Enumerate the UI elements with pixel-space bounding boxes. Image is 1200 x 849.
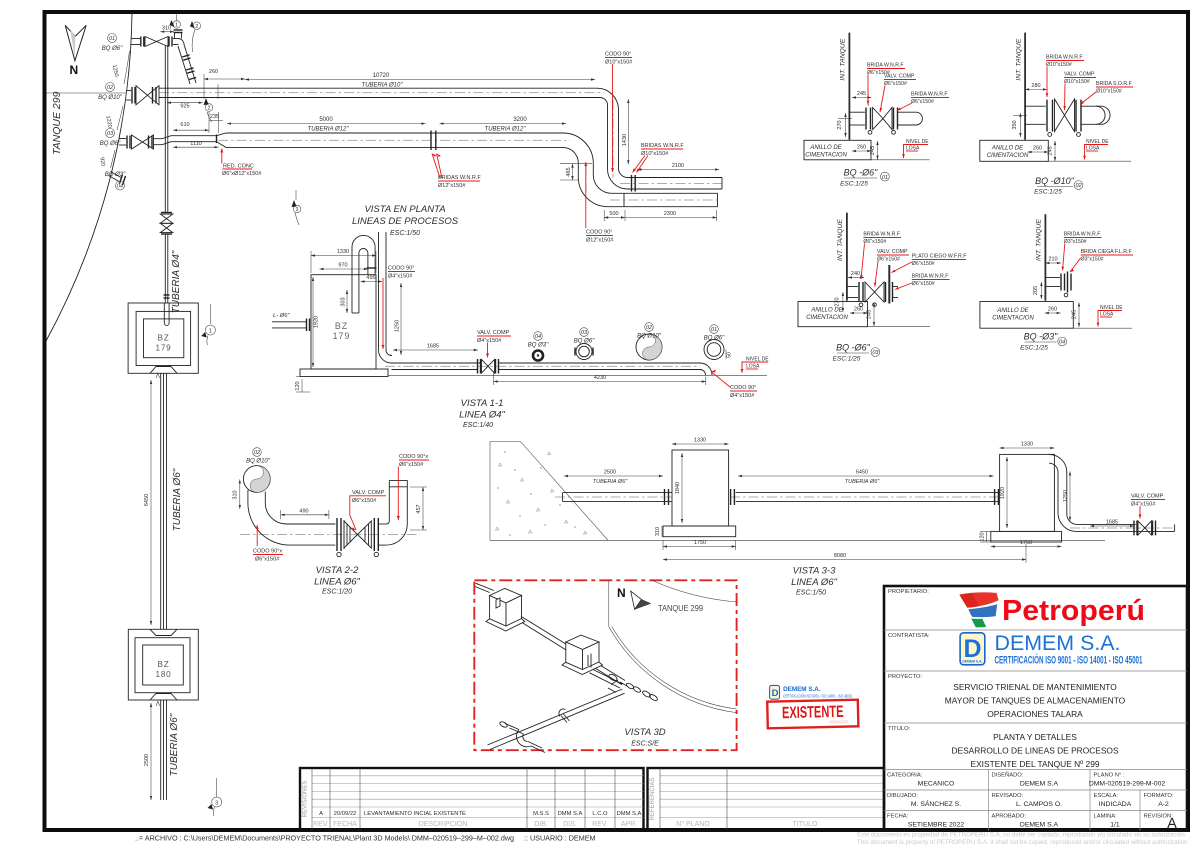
svg-text:920: 920 <box>98 157 105 167</box>
svg-text:5000: 5000 <box>319 117 333 123</box>
svg-text:6450: 6450 <box>856 470 868 476</box>
svg-text:BQ -Ø6": BQ -Ø6" <box>844 168 879 178</box>
svg-text:FORMATO:: FORMATO: <box>1144 793 1174 799</box>
svg-text:1840: 1840 <box>675 482 681 494</box>
svg-text:260: 260 <box>1033 146 1042 152</box>
svg-text:BQ Ø6": BQ Ø6" <box>100 141 121 147</box>
svg-text:BZ: BZ <box>335 321 348 331</box>
svg-text:BZ: BZ <box>157 334 169 343</box>
svg-text:LEVANTAMIENTO INCIAL EXISTEN: LEVANTAMIENTO INCIAL EXISTENTE <box>364 811 466 817</box>
svg-text:BQ Ø10": BQ Ø10" <box>98 95 123 101</box>
svg-text:CERTIFICACIÓN ISO 9001 - ISO: CERTIFICACIÓN ISO 9001 - ISO 14001 - ISO… <box>995 654 1143 667</box>
svg-text:465: 465 <box>566 167 572 176</box>
svg-text:DESARROLLO DE LINEAS DE PR: DESARROLLO DE LINEAS DE PROCESOS <box>951 746 1118 756</box>
svg-text:Ø12"x150#: Ø12"x150# <box>586 238 614 244</box>
svg-text:1: 1 <box>175 23 178 29</box>
svg-text:REVISADO:: REVISADO: <box>992 793 1024 799</box>
svg-text:BQ -Ø3": BQ -Ø3" <box>1024 332 1059 342</box>
svg-text:VISTA EN PLANTA: VISTA EN PLANTA <box>364 204 445 215</box>
svg-text:BQ -Ø6": BQ -Ø6" <box>836 343 871 353</box>
svg-text:3: 3 <box>215 801 218 807</box>
svg-text:03: 03 <box>581 330 588 336</box>
svg-text:VISTA 2-2: VISTA 2-2 <box>316 565 359 576</box>
svg-text:N° PLANO: N° PLANO <box>676 820 710 828</box>
svg-text:270: 270 <box>834 297 840 306</box>
svg-text:350: 350 <box>1012 120 1018 129</box>
svg-text:245: 245 <box>867 310 873 319</box>
svg-text:EXISTENTE DEL TANQUE Nº 29: EXISTENTE DEL TANQUE Nº 299 <box>970 759 1099 769</box>
svg-text:ESC:1/50: ESC:1/50 <box>796 590 826 597</box>
svg-text:ESC:1/50: ESC:1/50 <box>390 230 420 237</box>
svg-text:Ø10"x150#: Ø10"x150# <box>1096 89 1122 95</box>
svg-text:3: 3 <box>296 207 299 213</box>
svg-text:PROYECTO:: PROYECTO: <box>888 674 922 680</box>
svg-text:VALV. COMP: VALV. COMP <box>477 330 510 336</box>
svg-text:SETIEMBRE 2022: SETIEMBRE 2022 <box>908 822 965 829</box>
svg-text:LINEA Ø6": LINEA Ø6" <box>314 577 360 588</box>
svg-text:120: 120 <box>295 381 301 390</box>
svg-text:SERVICIO TRIENAL DE MANTENI: SERVICIO TRIENAL DE MANTENIMIENTO <box>953 682 1117 692</box>
svg-text:DIB.: DIB. <box>534 821 548 828</box>
svg-text:DIBUJADO:: DIBUJADO: <box>887 793 918 799</box>
svg-text:04: 04 <box>1059 340 1065 346</box>
svg-text:Ø10"x150#: Ø10"x150# <box>641 151 669 157</box>
svg-text:1110: 1110 <box>190 141 201 147</box>
svg-text:CIMENTACION: CIMENTACION <box>987 153 1029 159</box>
svg-text:BRIDAS W.N.R.F: BRIDAS W.N.R.F <box>438 175 481 181</box>
svg-text:PLANO N° :: PLANO N° : <box>1094 773 1125 779</box>
svg-text:TANQUE 299: TANQUE 299 <box>51 91 63 155</box>
svg-text:MECANICO: MECANICO <box>918 781 955 788</box>
svg-text:CIMENTACION: CIMENTACION <box>992 316 1034 322</box>
svg-text:BQ Ø6": BQ Ø6" <box>574 339 595 345</box>
svg-text:ANILLO DE: ANILLO DE <box>996 308 1029 314</box>
svg-text:02: 02 <box>1075 183 1081 189</box>
svg-text:610: 610 <box>180 122 189 128</box>
svg-text:ESC:1/25: ESC:1/25 <box>1034 189 1062 196</box>
svg-text:260: 260 <box>857 145 866 151</box>
svg-text:MAYOR DE TANQUES DE ALMACE: MAYOR DE TANQUES DE ALMACENAMIENTO <box>945 696 1126 706</box>
svg-text:FECHA: FECHA <box>333 821 357 828</box>
svg-text:179: 179 <box>155 344 171 353</box>
svg-text:310: 310 <box>655 527 661 536</box>
svg-text:03: 03 <box>107 131 114 137</box>
svg-text:VISTA 3D: VISTA 3D <box>624 727 665 738</box>
svg-text:Petroperú: Petroperú <box>1002 595 1145 627</box>
svg-text:INT. TANQUE: INT. TANQUE <box>840 38 847 80</box>
svg-text:20/09/22: 20/09/22 <box>334 811 357 817</box>
svg-text:L.C.O: L.C.O <box>592 811 608 817</box>
svg-text:Ø10"x150#: Ø10"x150# <box>1046 62 1072 68</box>
svg-text:APR.: APR. <box>621 821 637 828</box>
svg-text:DEMEM S.A.: DEMEM S.A. <box>783 686 821 693</box>
svg-text:260: 260 <box>854 307 863 313</box>
svg-text:245: 245 <box>1048 146 1054 155</box>
svg-text:260: 260 <box>209 69 218 75</box>
svg-text:1750: 1750 <box>694 540 706 546</box>
svg-text:CODO 90°: CODO 90° <box>586 230 612 236</box>
svg-text:DMM S.A: DMM S.A <box>617 811 642 817</box>
svg-text:Ø3"x150#: Ø3"x150# <box>1064 239 1087 245</box>
svg-text:10720: 10720 <box>373 73 390 79</box>
svg-text:2500: 2500 <box>144 754 150 766</box>
svg-text:179: 179 <box>333 331 351 341</box>
svg-text:180: 180 <box>155 670 171 679</box>
svg-text:TUBERIA Ø12": TUBERIA Ø12" <box>485 127 527 133</box>
svg-text:TUBERIA Ø6": TUBERIA Ø6" <box>172 468 183 531</box>
svg-text:2500: 2500 <box>604 470 616 476</box>
svg-text:VISTA 3-3: VISTA 3-3 <box>793 566 836 577</box>
svg-text:Ø6"x150#: Ø6"x150# <box>912 281 935 287</box>
svg-text:ESC:S/E: ESC:S/E <box>631 741 659 748</box>
svg-text:Ø4"x150#: Ø4"x150# <box>1131 502 1156 508</box>
svg-text:DIS.: DIS. <box>563 821 577 828</box>
svg-text:245: 245 <box>857 91 866 97</box>
svg-text:245: 245 <box>870 146 876 155</box>
svg-text:This document is property: This document is property of PETROPERU S… <box>857 839 1188 846</box>
svg-text:1330: 1330 <box>337 249 349 255</box>
svg-text:01: 01 <box>109 36 115 42</box>
svg-text:Ø4"x150#: Ø4"x150# <box>388 274 413 280</box>
svg-text:VALV. COMP: VALV. COMP <box>1131 494 1164 500</box>
svg-text:280: 280 <box>1031 83 1040 89</box>
svg-text:CODO 90°: CODO 90° <box>730 385 756 391</box>
svg-text:M.S.S: M.S.S <box>533 811 549 817</box>
svg-text:Ø6"x150#: Ø6"x150# <box>399 462 424 468</box>
svg-text:LINEA Ø6": LINEA Ø6" <box>791 577 837 588</box>
svg-text:REV.: REV. <box>313 821 329 828</box>
svg-text:240: 240 <box>851 271 860 277</box>
svg-text:CATEGORIA:: CATEGORIA: <box>887 773 923 779</box>
svg-text:INT. TANQUE: INT. TANQUE <box>1015 38 1022 80</box>
svg-text:03: 03 <box>872 350 879 356</box>
svg-text:M. SÁNCHEZ S.: M. SÁNCHEZ S. <box>911 799 961 808</box>
svg-text:PLANTA Y DETALLES: PLANTA Y DETALLES <box>993 732 1077 742</box>
svg-text:DMM-020519-299-M-002: DMM-020519-299-M-002 <box>1089 781 1166 788</box>
svg-text:210: 210 <box>1048 257 1057 263</box>
svg-text:DESCRIPCIÓN: DESCRIPCIÓN <box>419 819 468 828</box>
svg-text:490: 490 <box>299 508 308 514</box>
svg-text:BRIDA CIEGA F.L.R.F: BRIDA CIEGA F.L.R.F <box>1081 249 1132 255</box>
svg-text:310: 310 <box>162 26 171 32</box>
svg-text:BRIDA W.N.R.F: BRIDA W.N.R.F <box>912 274 949 280</box>
svg-text:BQ Ø3": BQ Ø3" <box>528 343 549 349</box>
svg-text:1250: 1250 <box>1063 490 1069 502</box>
svg-text:Ø6"xØ12"x150#: Ø6"xØ12"x150# <box>222 171 262 177</box>
svg-text:ESC:1/25: ESC:1/25 <box>833 356 861 363</box>
svg-text:ESC:1/40: ESC:1/40 <box>463 422 493 429</box>
svg-text:495: 495 <box>366 275 375 281</box>
svg-text:BRIDA W.N.R.F: BRIDA W.N.R.F <box>867 63 904 69</box>
svg-text:1: 1 <box>209 329 212 335</box>
svg-text:FECHA:: FECHA: <box>887 814 909 820</box>
svg-text:4230: 4230 <box>594 375 606 381</box>
svg-text:BRIDA S.O.R.F: BRIDA S.O.R.F <box>1096 81 1132 87</box>
svg-text:1920: 1920 <box>314 316 320 328</box>
svg-text:Ø6"x150#: Ø6"x150# <box>912 261 935 267</box>
svg-text:TUBERIA Ø6": TUBERIA Ø6" <box>845 479 880 485</box>
svg-text:N: N <box>70 63 79 77</box>
svg-text:Ø3"x150#: Ø3"x150# <box>1081 257 1104 263</box>
svg-text:1330: 1330 <box>1021 442 1033 448</box>
svg-text:REVISIONES: REVISIONES <box>303 781 309 818</box>
svg-text:303: 303 <box>341 297 347 306</box>
svg-text:VISTA 1-1: VISTA 1-1 <box>461 398 504 409</box>
svg-text:TUBERIA Ø12": TUBERIA Ø12" <box>308 127 350 133</box>
svg-text:DISEÑADO:: DISEÑADO: <box>992 772 1024 779</box>
svg-text:BQ Ø10": BQ Ø10" <box>246 459 271 465</box>
svg-text:1685: 1685 <box>1106 520 1118 526</box>
svg-text:2: 2 <box>208 106 211 112</box>
svg-text:L. CAMPOS O.: L. CAMPOS O. <box>1016 801 1062 808</box>
svg-text:BQ Ø3": BQ Ø3" <box>105 172 126 178</box>
svg-text:DMM S.A: DMM S.A <box>558 811 583 817</box>
svg-text:D: D <box>772 688 779 699</box>
svg-text:CONTRATISTA:: CONTRATISTA: <box>888 633 930 639</box>
svg-text:2: 2 <box>195 24 198 30</box>
svg-text:VALV. COMP: VALV. COMP <box>352 490 385 496</box>
svg-text:BQ Ø6": BQ Ø6" <box>704 336 725 342</box>
svg-text:925: 925 <box>180 104 189 110</box>
svg-text:1430: 1430 <box>622 134 628 146</box>
svg-text:EXISTENTE: EXISTENTE <box>782 703 844 722</box>
svg-text:ANILLO DE: ANILLO DE <box>991 146 1024 152</box>
svg-text:260: 260 <box>1048 307 1057 313</box>
svg-text:970: 970 <box>338 263 347 269</box>
svg-text:Ø4"x150#: Ø4"x150# <box>730 393 755 399</box>
svg-text:DEMEM S.A.: DEMEM S.A. <box>995 632 1121 655</box>
svg-text:235: 235 <box>210 114 219 120</box>
svg-text:50: 50 <box>727 352 733 358</box>
svg-text:02: 02 <box>646 325 652 331</box>
svg-text:L- Ø6": L- Ø6" <box>273 313 290 319</box>
svg-text:8080: 8080 <box>834 553 846 559</box>
svg-text:TITULO: TITULO <box>793 821 818 828</box>
svg-text:INDICADA: INDICADA <box>1099 801 1132 808</box>
svg-text:Ø6"x150#: Ø6"x150# <box>877 257 900 263</box>
svg-text:TITULO:: TITULO: <box>888 726 911 732</box>
svg-text:DEMEM S.A: DEMEM S.A <box>1020 822 1059 829</box>
svg-text:500: 500 <box>609 211 618 217</box>
svg-text:ESCALA:: ESCALA: <box>1094 793 1119 799</box>
svg-text:270: 270 <box>837 120 843 129</box>
svg-text:INT. TANQUE: INT. TANQUE <box>1036 219 1043 261</box>
svg-text:TUBERIA Ø6": TUBERIA Ø6" <box>593 479 628 485</box>
svg-text:310: 310 <box>233 490 239 499</box>
svg-text:Ø6"x150#: Ø6"x150# <box>863 239 886 245</box>
svg-text:BQ Ø10": BQ Ø10" <box>637 334 662 340</box>
svg-text:TUBERIA Ø10": TUBERIA Ø10" <box>362 83 404 89</box>
svg-text:Ø10"x150#: Ø10"x150# <box>605 60 633 66</box>
svg-text:01: 01 <box>711 327 717 333</box>
svg-text:02: 02 <box>254 450 260 456</box>
svg-text:A-2: A-2 <box>1158 801 1169 808</box>
svg-text:Ø10"x150#: Ø10"x150# <box>1064 79 1090 85</box>
svg-text:BRIDA W.N.R.F: BRIDA W.N.R.F <box>1046 55 1083 61</box>
svg-text:CODO 90°: CODO 90° <box>388 266 414 272</box>
svg-text:CODO 90°x: CODO 90°x <box>399 454 428 460</box>
svg-text:Ø4"x150#: Ø4"x150# <box>477 338 502 344</box>
svg-text:LINEA Ø4": LINEA Ø4" <box>459 410 505 421</box>
svg-text:245: 245 <box>1072 310 1078 319</box>
svg-text:DEMEM S.A.: DEMEM S.A. <box>962 659 982 663</box>
svg-text:Ø12"x150#: Ø12"x150# <box>438 183 466 189</box>
svg-text:BRIDA W.N.R.F: BRIDA W.N.R.F <box>1064 232 1101 238</box>
svg-text:02: 02 <box>107 85 113 91</box>
svg-text:CODO 90°x: CODO 90°x <box>253 549 282 555</box>
svg-text:BRIDA W.N.R.F: BRIDA W.N.R.F <box>911 92 948 98</box>
svg-text:PROPIETARIO:: PROPIETARIO: <box>888 589 929 595</box>
svg-text:A: A <box>1167 816 1177 832</box>
svg-text:LAMINA:: LAMINA: <box>1094 814 1118 820</box>
svg-text:ESC:1/25: ESC:1/25 <box>1020 345 1048 352</box>
svg-text:205: 205 <box>1033 286 1039 295</box>
svg-text:457: 457 <box>416 504 422 513</box>
svg-text:LINEAS DE PROCESOS: LINEAS DE PROCESOS <box>352 216 459 227</box>
svg-text:1250: 1250 <box>395 320 401 332</box>
svg-text:Ø6"x150#: Ø6"x150# <box>884 81 907 87</box>
svg-text:ANILLO DE: ANILLO DE <box>809 145 842 151</box>
svg-text:04: 04 <box>117 184 123 190</box>
svg-text:6450: 6450 <box>144 494 150 506</box>
svg-text:DEMEM S.A: DEMEM S.A <box>1020 781 1059 788</box>
svg-text:2300: 2300 <box>664 211 676 217</box>
svg-text:3200: 3200 <box>513 117 527 123</box>
svg-text:..= ARCHIVO : C:\Users\DEME: ..= ARCHIVO : C:\Users\DEMEM\Documents\P… <box>135 834 596 843</box>
svg-text:1685: 1685 <box>427 344 439 350</box>
svg-text:120: 120 <box>980 532 986 541</box>
svg-text:BRIDA W.N.R.F: BRIDA W.N.R.F <box>863 232 900 238</box>
svg-text:1330: 1330 <box>694 438 706 444</box>
svg-text:CIMENTACION: CIMENTACION <box>805 153 847 159</box>
svg-text:ESC:1/25: ESC:1/25 <box>840 181 868 188</box>
svg-text:25/09/2022: 25/09/2022 <box>829 720 848 724</box>
svg-text:VALV. COMP: VALV. COMP <box>877 249 908 255</box>
svg-text:TANQUE 299: TANQUE 299 <box>658 603 703 613</box>
svg-text:CERTIFICACIÓN ISO 9001 - ISO 1: CERTIFICACIÓN ISO 9001 - ISO 14001 - ISO… <box>783 693 852 700</box>
svg-text:INT. TANQUE: INT. TANQUE <box>837 219 844 261</box>
svg-text:TUBERIA Ø4": TUBERIA Ø4" <box>171 250 182 313</box>
svg-text:BZ: BZ <box>157 660 169 669</box>
svg-text:N: N <box>617 586 626 600</box>
svg-text:ESC:1/20: ESC:1/20 <box>322 589 352 596</box>
svg-text:TUBERIA Ø6": TUBERIA Ø6" <box>169 713 180 776</box>
svg-text:BQ Ø6": BQ Ø6" <box>102 46 123 52</box>
svg-text:REV.: REV. <box>592 821 608 828</box>
svg-text:Este documento es propiedad: Este documento es propiedad de PETROPERU… <box>857 832 1185 839</box>
svg-text:VALV. COMP: VALV. COMP <box>884 74 915 80</box>
svg-text:APROBADO:: APROBADO: <box>992 814 1027 820</box>
svg-text:CIMENTACION: CIMENTACION <box>806 315 848 321</box>
svg-text:1920: 1920 <box>1000 487 1006 499</box>
svg-text:REFERENCIAS: REFERENCIAS <box>650 778 656 821</box>
svg-text:04: 04 <box>535 334 541 340</box>
svg-text:Ø6"x150#: Ø6"x150# <box>911 99 934 105</box>
svg-text:Ø6"x150#: Ø6"x150# <box>352 498 377 504</box>
svg-text:BRIDAS W.N.R.F: BRIDAS W.N.R.F <box>641 143 684 149</box>
svg-text:A: A <box>319 811 323 817</box>
svg-text:1/1: 1/1 <box>1110 822 1120 829</box>
svg-text:CODO 90°: CODO 90° <box>605 52 631 58</box>
svg-text:Ø6"x150#: Ø6"x150# <box>255 557 280 563</box>
svg-text:2100: 2100 <box>672 163 684 169</box>
svg-text:ANILLO DE: ANILLO DE <box>810 308 843 314</box>
svg-text:01: 01 <box>882 175 888 181</box>
svg-text:OPERACIONES TALARA: OPERACIONES TALARA <box>987 709 1083 719</box>
svg-text:BQ -Ø10": BQ -Ø10" <box>1035 176 1075 186</box>
svg-text:PLATO CIEGO W.F.R.F: PLATO CIEGO W.F.R.F <box>912 254 967 260</box>
svg-text:VALV. COMP: VALV. COMP <box>1064 72 1095 78</box>
